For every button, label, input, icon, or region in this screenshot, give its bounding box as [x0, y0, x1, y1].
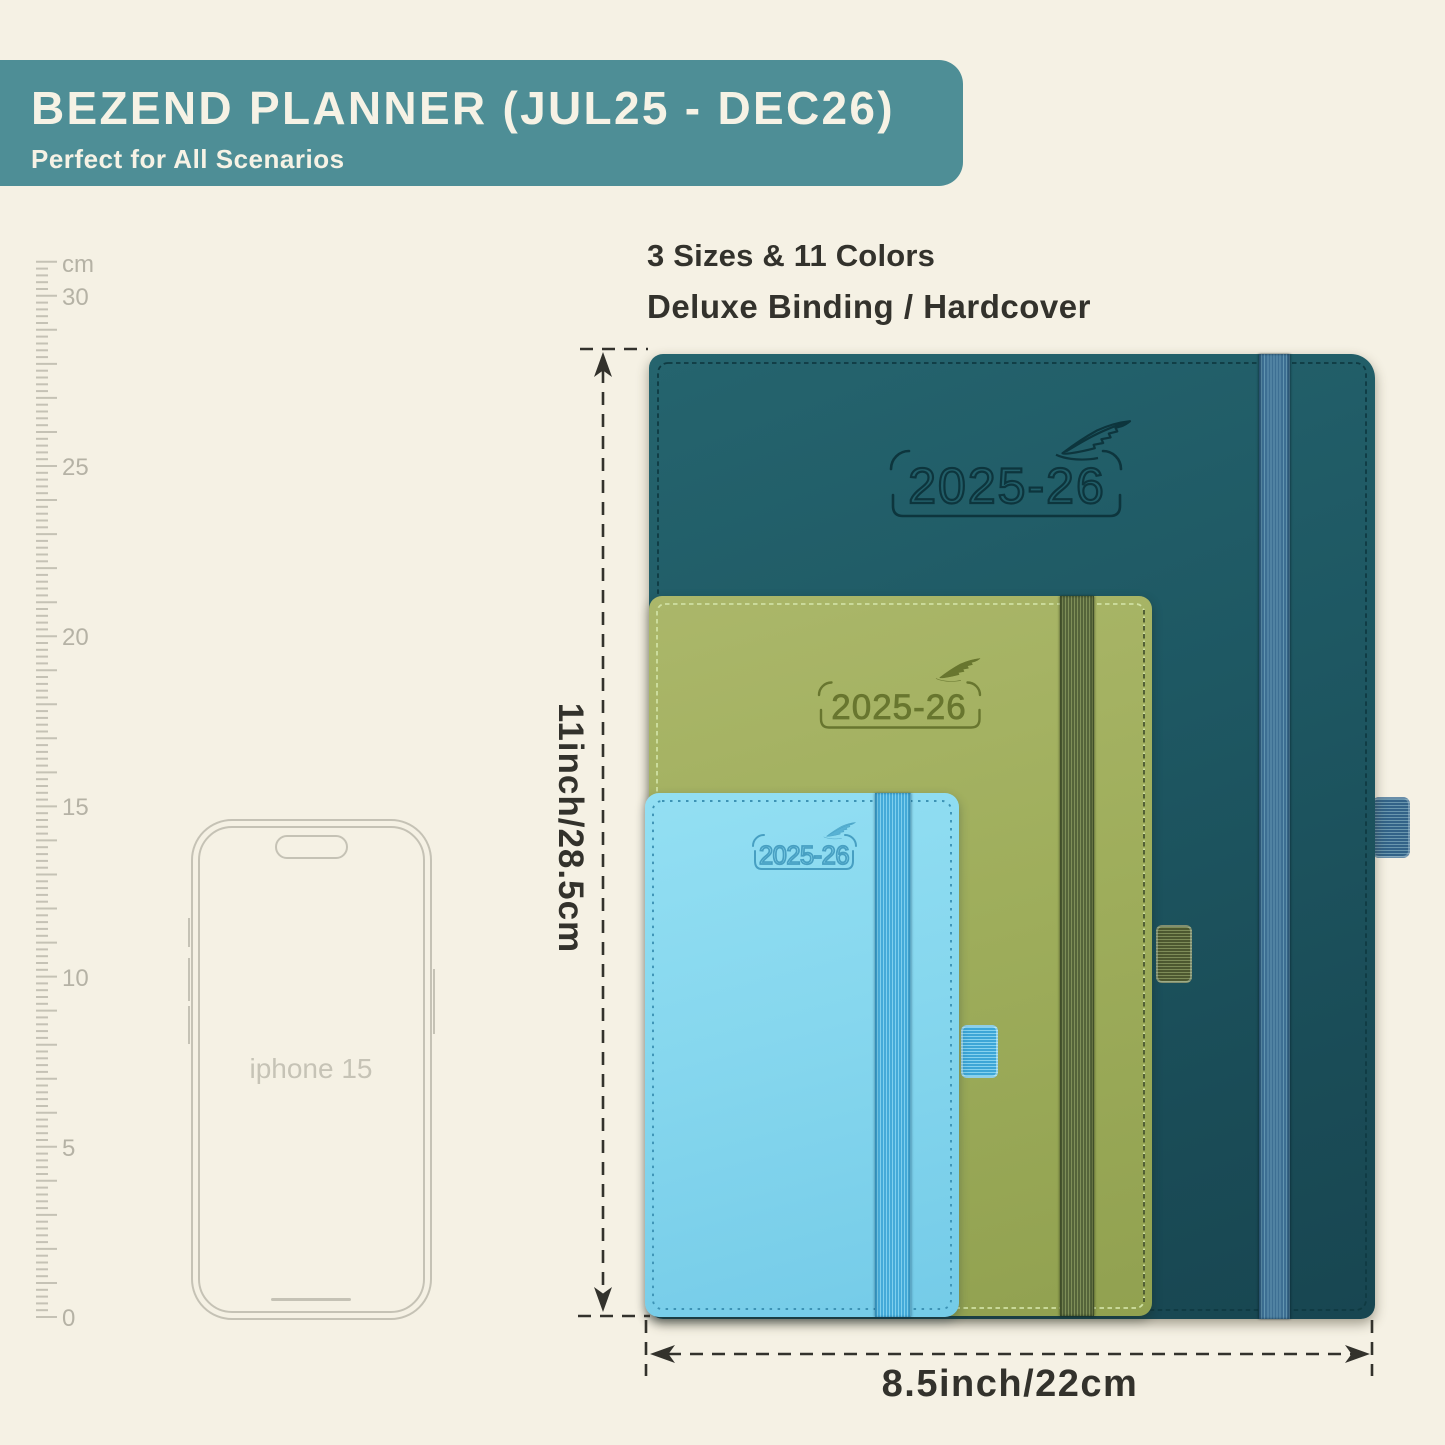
svg-text:0: 0 [62, 1305, 75, 1332]
svg-text:15: 15 [62, 794, 89, 821]
svg-text:20: 20 [62, 624, 89, 651]
svg-text:30: 30 [62, 284, 89, 311]
svg-text:cm: cm [62, 251, 94, 278]
svg-text:iphone 15: iphone 15 [249, 1053, 372, 1084]
svg-text:10: 10 [62, 965, 89, 992]
svg-text:5: 5 [62, 1135, 75, 1162]
svg-text:25: 25 [62, 454, 89, 481]
